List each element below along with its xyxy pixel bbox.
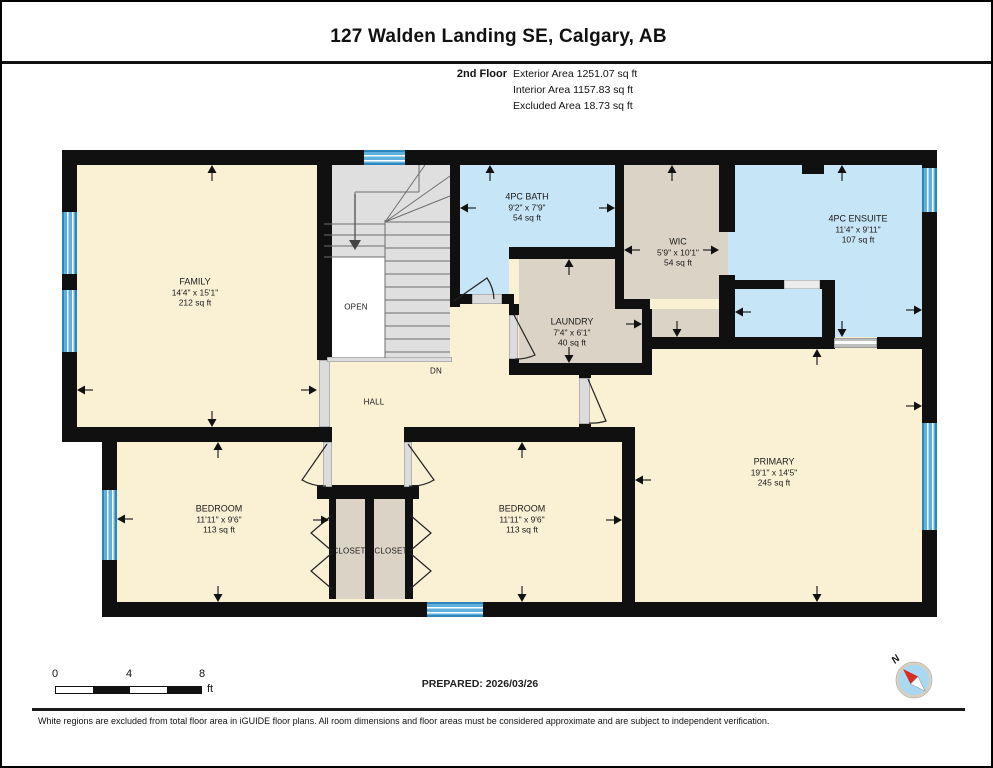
label-stairs-down: DN xyxy=(430,367,442,376)
dimension-arrow-down xyxy=(673,321,682,337)
dimension-arrow-left xyxy=(117,515,133,524)
dimension-arrow-left xyxy=(460,204,476,213)
dimension-arrow-up xyxy=(486,165,495,181)
dimension-arrow-up xyxy=(813,349,822,365)
dimension-arrow-left xyxy=(77,386,93,395)
floorplan-page: 127 Walden Landing SE, Calgary, AB 2nd F… xyxy=(0,0,993,768)
dimension-arrow-down xyxy=(813,586,822,602)
room-label-ensuite-4pc: 4PC ENSUITE11'4" x 9'11"107 sq ft xyxy=(828,213,887,245)
dimension-arrow-up xyxy=(518,442,527,458)
dimension-arrow-up xyxy=(214,442,223,458)
plan-overlay: N xyxy=(2,2,993,768)
dimension-arrow-left xyxy=(735,308,751,317)
dimension-arrow-right xyxy=(703,246,719,255)
prepared-date: PREPARED: 2026/03/26 xyxy=(390,678,570,690)
bifold-closet-right xyxy=(410,515,431,589)
dimension-arrow-up xyxy=(565,259,574,275)
door-bedroom-right xyxy=(408,444,434,486)
scale-tick-8: 8 xyxy=(195,668,209,680)
dimension-arrow-left xyxy=(635,476,651,485)
dimension-arrow-right xyxy=(906,402,922,411)
dimension-arrow-down xyxy=(214,586,223,602)
door-bedroom-left xyxy=(302,444,327,486)
dimension-arrow-down xyxy=(838,321,847,337)
room-label-bedroom-right: BEDROOM11'11" x 9'6"113 sq ft xyxy=(499,503,546,535)
dimension-arrow-up xyxy=(208,165,217,181)
label-closet-right: CLOSET xyxy=(374,547,407,556)
room-label-bath-4pc: 4PC BATH9'2" x 7'9"54 sq ft xyxy=(505,191,548,223)
stairs-down-arrow xyxy=(349,194,361,250)
dimension-arrow-right xyxy=(313,516,329,525)
dimension-arrow-down xyxy=(518,586,527,602)
scale-tick-0: 0 xyxy=(48,668,62,680)
scale-bar xyxy=(55,686,202,694)
scale-tick-4: 4 xyxy=(122,668,136,680)
compass-icon: N xyxy=(890,653,932,698)
footer-divider xyxy=(32,708,965,711)
dimension-arrow-down xyxy=(208,411,217,427)
room-label-bedroom-left: BEDROOM11'11" x 9'6"113 sq ft xyxy=(196,503,243,535)
disclaimer-text: White regions are excluded from total fl… xyxy=(38,716,968,726)
dimension-arrow-right xyxy=(606,516,622,525)
dimension-arrows xyxy=(77,165,922,602)
scale-unit: ft xyxy=(207,683,213,695)
closet-bifold-doors xyxy=(311,515,431,589)
room-label-primary: PRIMARY19'1" x 14'5"245 sq ft xyxy=(751,456,798,488)
dimension-arrow-right xyxy=(906,306,922,315)
floor-plan: N FAMILY14'4" x 15'1"212 sq ft4PC BATH9'… xyxy=(2,2,993,768)
room-label-laundry: LAUNDRY7'4" x 6'1"40 sq ft xyxy=(551,316,594,348)
label-open-to-below: OPEN xyxy=(344,303,367,312)
dimension-arrow-up xyxy=(838,165,847,181)
room-label-family: FAMILY14'4" x 15'1"212 sq ft xyxy=(172,276,219,308)
door-laundry xyxy=(514,315,535,359)
label-closet-left: CLOSET xyxy=(332,547,365,556)
label-hall: HALL xyxy=(364,398,385,407)
dimension-arrow-up xyxy=(668,165,677,181)
door-primary xyxy=(588,379,606,423)
dimension-arrow-right xyxy=(626,320,642,329)
bifold-closet-left xyxy=(311,515,332,589)
dimension-arrow-right xyxy=(301,386,317,395)
staircase xyxy=(324,165,450,358)
door-bath xyxy=(454,278,494,301)
dimension-arrow-right xyxy=(599,204,615,213)
dimension-arrow-left xyxy=(624,246,640,255)
compass-north-label: N xyxy=(890,653,903,667)
dimension-arrow-down xyxy=(565,347,574,363)
room-label-wic: WIC5'9" x 10'1"54 sq ft xyxy=(657,236,699,268)
